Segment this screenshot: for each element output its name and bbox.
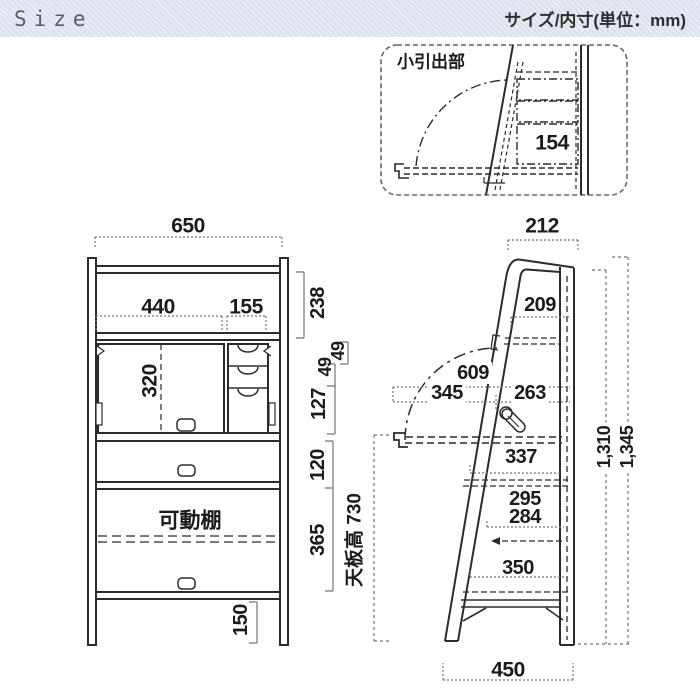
callout-label: 小引出部 bbox=[397, 54, 465, 71]
side-top-edge bbox=[519, 260, 574, 268]
side-open-flap-line bbox=[405, 437, 562, 443]
dim-155: 155 bbox=[229, 297, 263, 318]
callout-slant-hidden-2 bbox=[500, 62, 523, 190]
stay-bar bbox=[502, 409, 525, 432]
size-diagram-canvas: Size サイズ/内寸(単位：mm) bbox=[0, 0, 700, 700]
dim-150: 150 bbox=[231, 604, 251, 636]
dim-450: 450 bbox=[491, 660, 525, 681]
dim-650: 650 bbox=[171, 216, 205, 237]
dim-263: 263 bbox=[511, 382, 549, 404]
dim-284: 284 bbox=[509, 507, 541, 527]
callout-flap-edge-hook bbox=[395, 164, 409, 178]
dim-120: 120 bbox=[308, 449, 328, 481]
dim-127: 127 bbox=[309, 388, 329, 420]
dim-line-238 bbox=[296, 272, 304, 338]
side-shelf-hidden bbox=[504, 338, 560, 344]
front-cabinet-bottom-board bbox=[96, 433, 280, 441]
front-mid-board bbox=[96, 482, 280, 489]
front-shelf-board bbox=[96, 333, 280, 340]
front-bottom-board bbox=[96, 592, 280, 599]
dim-212: 212 bbox=[525, 216, 559, 237]
side-board-hidden-1 bbox=[463, 480, 568, 486]
front-drawer-row-handle bbox=[178, 465, 195, 476]
side-flap-edge-hook bbox=[394, 433, 408, 447]
dim-1345: 1,345 bbox=[617, 423, 637, 472]
front-right-hinge bbox=[269, 403, 275, 425]
front-top-board bbox=[96, 266, 280, 273]
dim-238: 238 bbox=[308, 287, 328, 319]
front-left-post bbox=[88, 258, 96, 645]
front-door-handle bbox=[177, 419, 195, 431]
dim-350: 350 bbox=[502, 558, 534, 578]
front-movable-shelf-line bbox=[98, 536, 278, 542]
front-right-post bbox=[280, 258, 288, 645]
side-stay-hardware bbox=[500, 407, 525, 432]
front-left-hinge bbox=[96, 403, 102, 425]
dim-345: 345 bbox=[428, 382, 466, 404]
callout-front-slant bbox=[486, 45, 513, 195]
side-bottom-board bbox=[461, 600, 560, 607]
dim-1310: 1,310 bbox=[594, 423, 614, 472]
technical-drawing bbox=[0, 0, 700, 700]
callout-drawer-2 bbox=[517, 101, 578, 122]
dim-609: 609 bbox=[454, 362, 492, 384]
side-cap-bottom bbox=[527, 270, 560, 273]
dim-337: 337 bbox=[502, 446, 540, 468]
dim-line-209 bbox=[511, 317, 570, 327]
dim-365: 365 bbox=[308, 524, 328, 556]
callout-drawer-1 bbox=[517, 79, 578, 100]
dim-line-650 bbox=[95, 237, 282, 248]
dim-209: 209 bbox=[524, 295, 556, 315]
dim-320: 320 bbox=[140, 364, 161, 398]
front-lower-catch bbox=[178, 578, 195, 589]
dim-line-212 bbox=[508, 240, 578, 251]
side-corner-braces bbox=[463, 608, 563, 621]
side-arrowhead bbox=[491, 537, 500, 545]
dim-49b: 49 bbox=[316, 357, 334, 376]
dim-440: 440 bbox=[141, 297, 175, 318]
dim-154: 154 bbox=[535, 133, 569, 154]
movable-shelf-label: 可動棚 bbox=[159, 511, 222, 532]
dim-line-desk-height bbox=[374, 435, 389, 641]
desk-height-label: 天板高 730 bbox=[346, 493, 365, 587]
